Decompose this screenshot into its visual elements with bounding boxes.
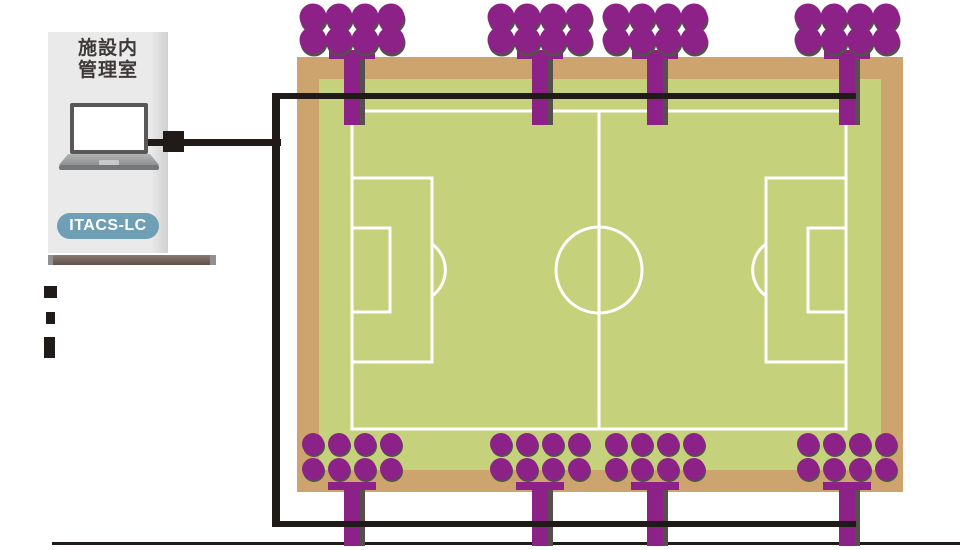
floodlight-fixture-bottom (302, 433, 403, 546)
floodlights-bottom (302, 433, 898, 546)
vertical-trunk-cable (272, 93, 280, 527)
top-trunk-cable (272, 93, 856, 99)
panel-title-line2: 管理室 (48, 60, 168, 82)
floodlight-fixture-top (795, 4, 901, 126)
diagram-stage: 施設内 管理室 ITACS-LC (0, 0, 960, 550)
field-border-track (297, 57, 903, 492)
floodlight-fixture-bottom (605, 433, 706, 546)
floodlight-fixture-top (488, 4, 594, 126)
ground-baseline (52, 542, 960, 545)
dashed-cable-marks (44, 286, 57, 358)
device-badge: ITACS-LC (57, 213, 159, 239)
bottom-trunk-cable (272, 521, 856, 527)
floodlight-fixture-bottom (797, 433, 898, 546)
panel-title-line1: 施設内 (48, 38, 168, 60)
floodlight-fixture-bottom (490, 433, 591, 546)
floodlight-fixture-top (603, 4, 709, 126)
desk-shelf (48, 255, 216, 265)
floodlight-fixture-top (300, 4, 406, 126)
floodlights-top (300, 4, 901, 126)
panel-title: 施設内 管理室 (48, 38, 168, 82)
device-badge-label: ITACS-LC (69, 217, 146, 235)
soccer-field (297, 57, 903, 492)
field-markings (352, 111, 846, 429)
field-grass (319, 79, 881, 470)
